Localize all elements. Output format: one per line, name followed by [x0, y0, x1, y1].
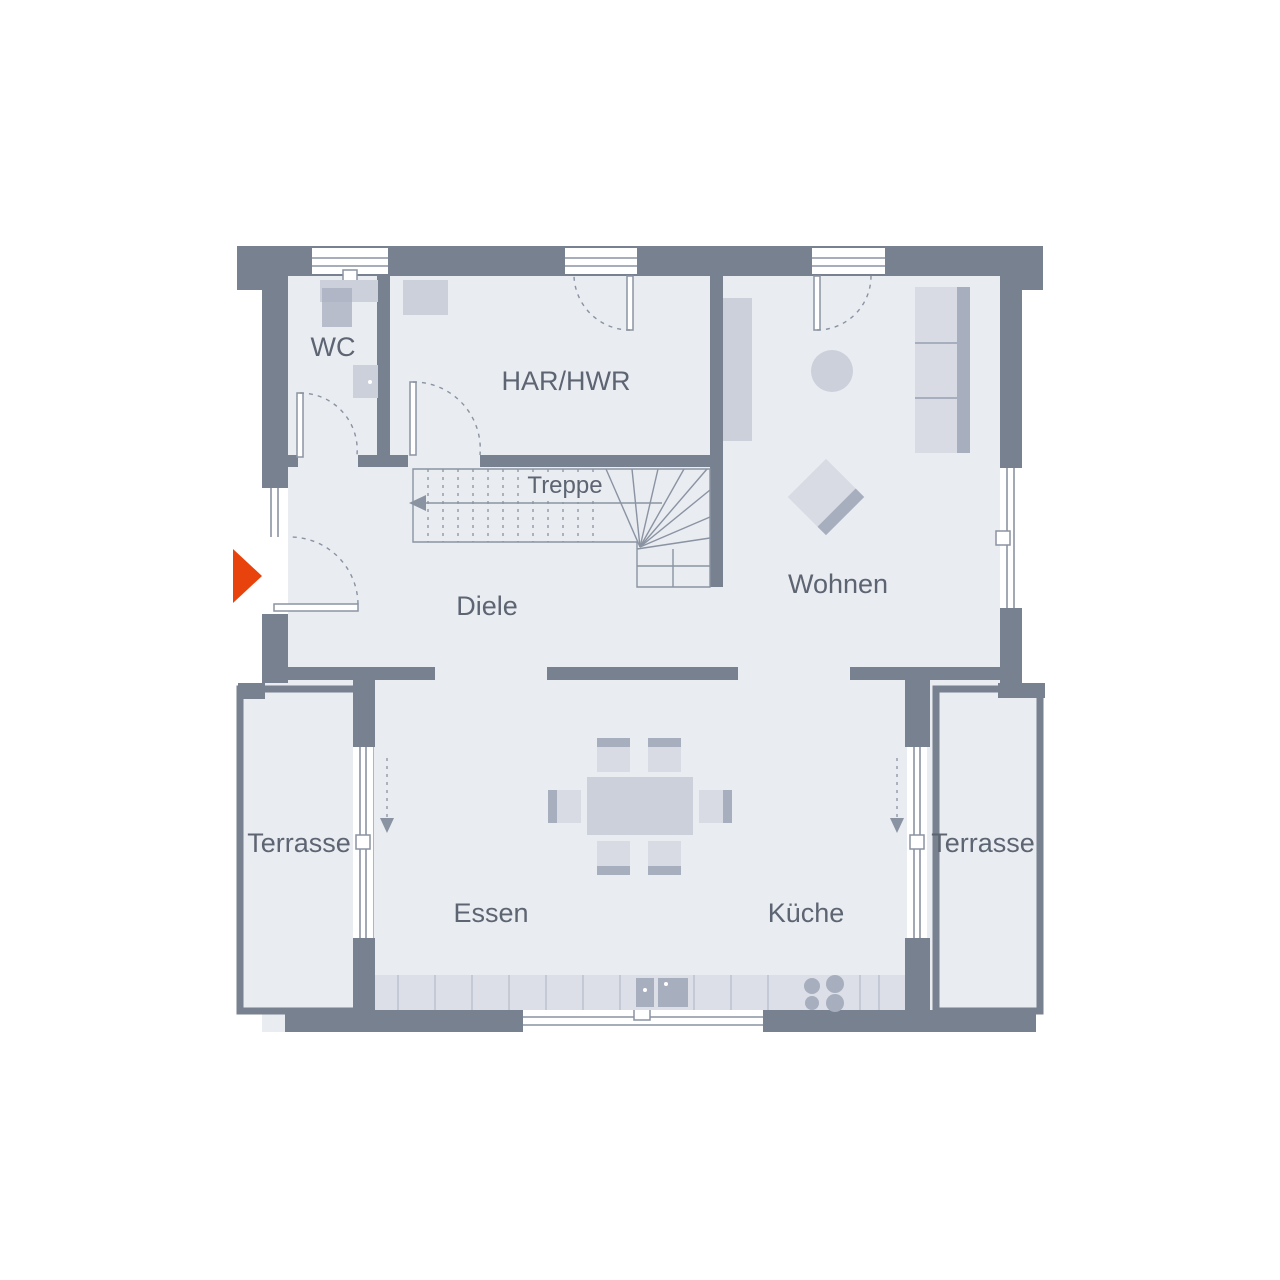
door-wc-leaf	[297, 393, 303, 457]
room-label-terrasse-right: Terrasse	[931, 828, 1035, 858]
room-label-diele: Diele	[456, 591, 518, 621]
entrance-arrow-icon	[233, 549, 262, 603]
door-har-ext-opening	[565, 248, 637, 274]
dining-chair-bottom-2	[648, 841, 681, 875]
wc-toilet-body	[353, 365, 378, 398]
wall-har-wohnen	[710, 276, 723, 587]
wall-stub-wohnen-kueche	[850, 667, 1007, 680]
wohnen-round-table	[811, 350, 853, 392]
wall-top-left-step	[237, 276, 263, 290]
burner-2	[826, 975, 844, 993]
sliding-door-left-handle	[356, 835, 370, 849]
dining-chair-bottom-1	[597, 841, 630, 875]
wall-stub-diele-essen-left	[288, 667, 435, 680]
wall-top-right-step	[1022, 276, 1043, 290]
sofa-seats	[915, 287, 958, 453]
door-wohnen-ext-leaf	[814, 276, 820, 330]
door-har-leaf	[410, 382, 416, 455]
kitchen-counter	[375, 975, 905, 1012]
wall-kueche-terrace-lower	[905, 938, 930, 1010]
wall-essen-terrace-lower	[353, 938, 375, 1010]
room-label-har-hwr: HAR/HWR	[502, 366, 631, 396]
room-label-essen: Essen	[453, 898, 528, 928]
sliding-door-right-handle	[910, 835, 924, 849]
window-wohnen-handle	[996, 531, 1010, 545]
dining-chair-top-2	[648, 738, 681, 772]
wall-wc-bottom-right	[358, 455, 408, 467]
entry-door-leaf	[274, 604, 358, 611]
sofa-back	[957, 287, 970, 453]
wall-essen-terrace-upper	[353, 680, 375, 747]
wc-toilet	[353, 365, 378, 398]
wall-har-bottom	[480, 455, 710, 467]
door-har-ext-leaf	[627, 276, 633, 330]
room-label-wohnen: Wohnen	[788, 569, 888, 599]
room-label-treppe: Treppe	[527, 472, 602, 499]
wall-left	[262, 276, 288, 683]
kitchen-sink	[636, 978, 688, 1007]
dining-chair-top-1	[597, 738, 630, 772]
sink-dot-right	[664, 982, 668, 986]
dining-chair-right	[699, 790, 732, 823]
burner-1	[804, 978, 820, 994]
wc-toilet-dot	[368, 380, 372, 384]
entry-door-opening	[262, 537, 288, 614]
wc-basin	[322, 288, 352, 327]
burner-3	[805, 996, 819, 1010]
floor-plan-svg: WC HAR/HWR Treppe Diele Wohnen Terrasse …	[0, 0, 1280, 1280]
dining-chair-left	[548, 790, 581, 823]
room-label-kueche: Küche	[768, 898, 845, 928]
entry-sidelight-opening	[262, 488, 288, 537]
room-label-terrasse-left: Terrasse	[247, 828, 351, 858]
wohnen-sofa	[915, 287, 970, 453]
terrace-left-corner-wall	[238, 683, 265, 699]
sink-basin-left	[636, 978, 654, 1007]
wall-stub-diele-essen-mid	[547, 667, 738, 680]
dining-table	[587, 777, 693, 835]
sink-dot-left	[643, 988, 647, 992]
wall-wc-right	[377, 276, 390, 467]
floor-plan-canvas: WC HAR/HWR Treppe Diele Wohnen Terrasse …	[0, 0, 1280, 1280]
wohnen-sideboard	[723, 298, 752, 441]
wall-kueche-terrace-upper	[905, 680, 930, 747]
sink-basin-right	[658, 978, 688, 1007]
har-appliance	[403, 280, 448, 315]
door-wohnen-ext-opening	[812, 248, 885, 274]
burner-4	[826, 994, 844, 1012]
room-label-wc: WC	[311, 332, 356, 362]
